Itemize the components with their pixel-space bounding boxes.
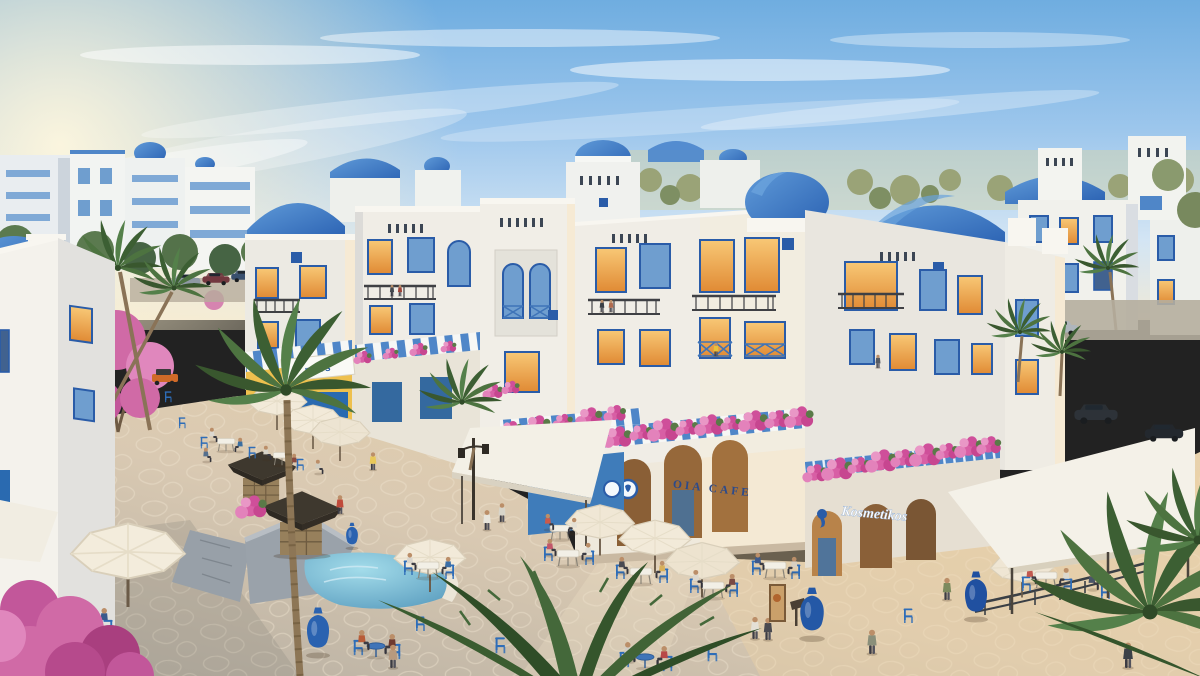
parked-suv [1074, 404, 1183, 441]
cafe-table [216, 438, 235, 453]
arched-doorway [906, 499, 936, 560]
scene-canvas: ness [0, 0, 1200, 676]
cafe-chair [165, 391, 172, 402]
blue-balcony [1140, 196, 1162, 210]
cafe-table [763, 562, 787, 581]
cafe-table [556, 550, 580, 569]
cafe-table [416, 562, 440, 581]
architectural-rendering: ness [0, 0, 1200, 676]
shop-medallion-sign [604, 481, 620, 497]
